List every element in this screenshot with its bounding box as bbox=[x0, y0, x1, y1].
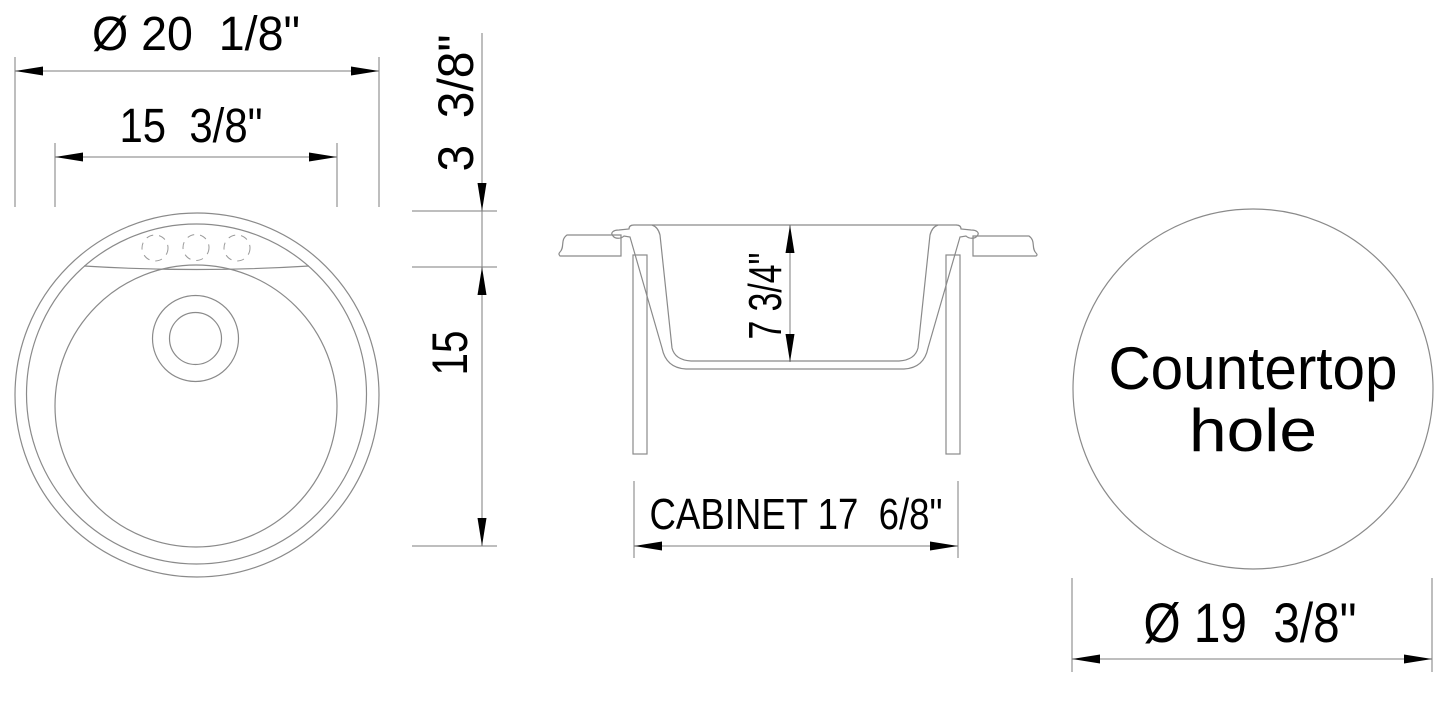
countertop-hole-label-line2: hole bbox=[1189, 397, 1317, 464]
drawing-svg: Ø 20 1/8" 15 3/8" 3 3/8" 15 7 3/4" bbox=[0, 0, 1445, 723]
technical-drawing: Ø 20 1/8" 15 3/8" 3 3/8" 15 7 3/4" bbox=[0, 0, 1445, 723]
bowl-length-label: 15 bbox=[422, 331, 478, 376]
deck-depth-label: 3 3/8" bbox=[428, 35, 484, 172]
bowl-depth-label: 7 3/4" bbox=[739, 253, 791, 340]
bowl-width-label: 15 3/8" bbox=[120, 100, 263, 153]
outer-diameter-label: Ø 20 1/8" bbox=[92, 8, 300, 61]
hole-diameter-label: Ø 19 3/8" bbox=[1144, 591, 1357, 654]
cabinet-width-label: CABINET 17 6/8" bbox=[650, 490, 943, 539]
countertop-hole-label-line1: Countertop bbox=[1109, 335, 1398, 402]
